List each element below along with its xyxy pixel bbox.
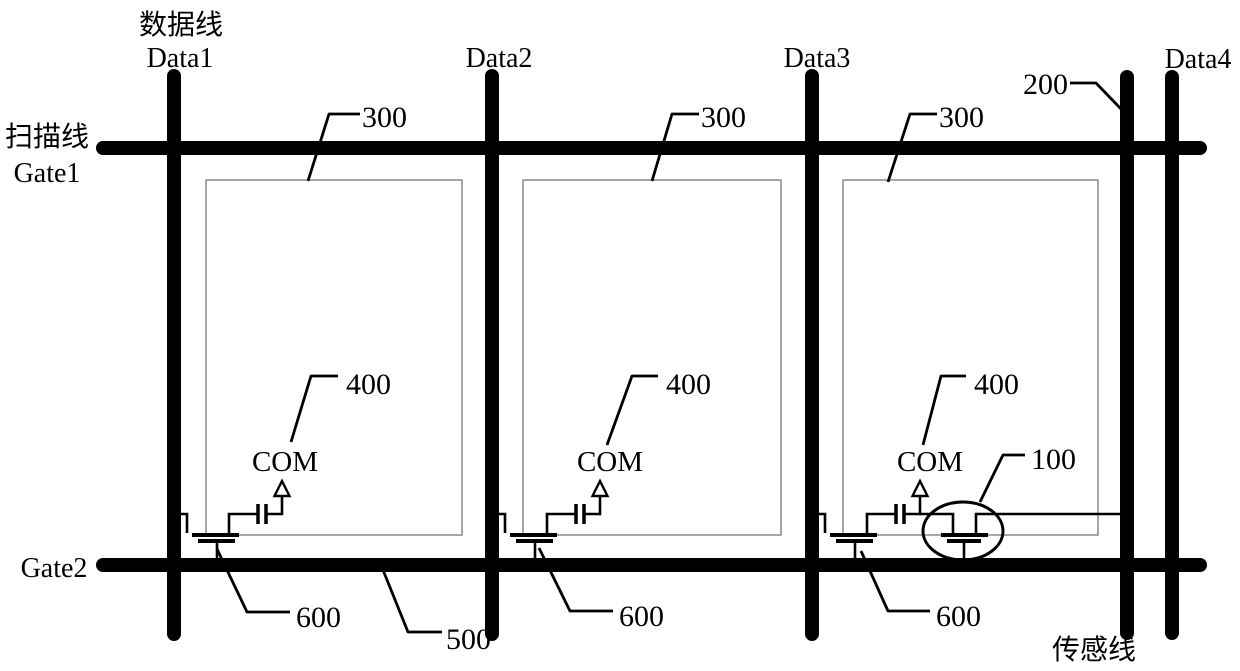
data4-label: Data4 <box>1165 44 1232 75</box>
ref-500-label: 500 <box>446 623 491 656</box>
tft2-drain-wire <box>547 514 576 533</box>
gate2-label: Gate2 <box>21 553 88 584</box>
leader-200 <box>1070 83 1122 110</box>
leader-400-3 <box>923 376 966 445</box>
scan-line-cn-label: 扫描线 <box>5 121 89 153</box>
tft3-drain-wire <box>867 514 896 533</box>
leader-400-1 <box>291 376 338 442</box>
ref-600-label-1: 600 <box>296 601 341 634</box>
leader-500 <box>383 570 442 632</box>
ref-100-label: 100 <box>1031 443 1076 476</box>
figure-canvas: COM COM COM <box>0 0 1240 671</box>
ref-400-label-1: 400 <box>346 368 391 401</box>
data-line-cn-label: 数据线 <box>139 9 223 41</box>
gate1-label: Gate1 <box>14 158 81 189</box>
ref-600-label-3: 600 <box>936 600 981 633</box>
ref-300-label-3: 300 <box>939 101 984 134</box>
pixel-cell-1: COM <box>174 446 318 560</box>
com-label-2: COM <box>577 446 643 478</box>
sense-line-cn-label: 传感线 <box>1052 634 1136 666</box>
com-label-1: COM <box>252 446 318 478</box>
ref-300-label-1: 300 <box>362 101 407 134</box>
com3-arrow-stem <box>904 497 920 514</box>
pixel-rect-2 <box>523 180 781 535</box>
pixel-cell-2: COM <box>492 446 643 560</box>
circuit-diagram: COM COM COM <box>0 0 1240 671</box>
ref-600-label-2: 600 <box>619 600 664 633</box>
data2-label: Data2 <box>466 43 533 74</box>
ref-400-label-2: 400 <box>666 368 711 401</box>
ref-300-label-2: 300 <box>701 101 746 134</box>
com3-arrow-icon <box>913 481 928 496</box>
leader-100 <box>980 455 1025 502</box>
pixel-rect-1 <box>206 180 462 535</box>
ref-200-label: 200 <box>1023 68 1068 101</box>
data1-label: Data1 <box>147 43 214 74</box>
com1-arrow-icon <box>275 481 290 496</box>
tft1-drain-wire <box>229 514 258 533</box>
ref-400-label-3: 400 <box>974 368 1019 401</box>
leader-600-2 <box>539 548 613 611</box>
pixel-cell-3: COM <box>812 446 1127 560</box>
data3-label: Data3 <box>784 43 851 74</box>
com-label-3: COM <box>897 446 963 478</box>
com2-arrow-stem <box>584 497 600 514</box>
com2-arrow-icon <box>593 481 608 496</box>
leader-400-2 <box>607 376 658 445</box>
pixel-rect-3 <box>843 180 1098 535</box>
com1-arrow-stem <box>266 497 282 514</box>
